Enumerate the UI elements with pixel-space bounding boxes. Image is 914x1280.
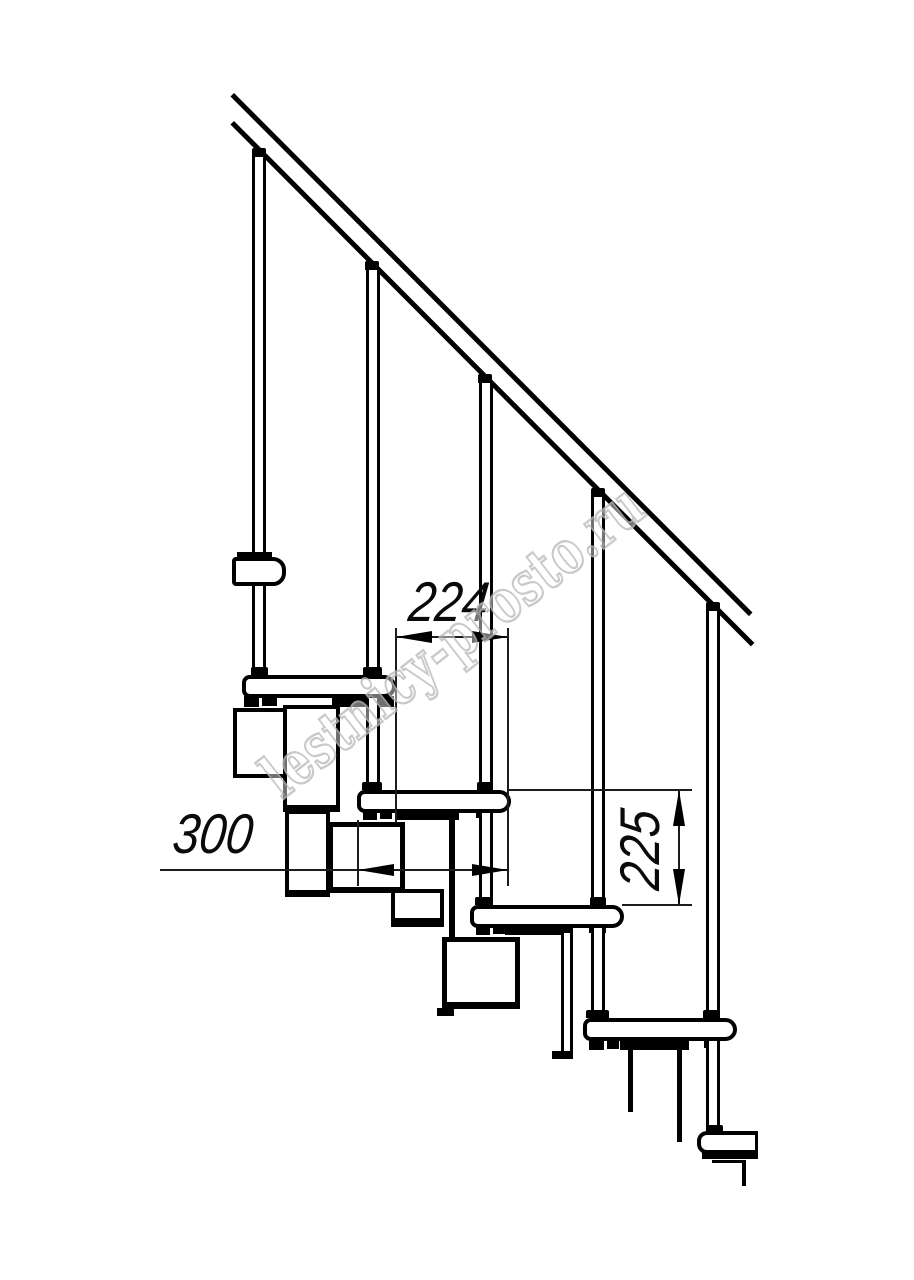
tread-5 [583, 1018, 737, 1041]
module-leg-t4-foot [552, 1051, 573, 1059]
baluster-5-tread-cap [707, 1125, 723, 1133]
module-leg-t5-left [628, 1050, 633, 1112]
baluster-4 [591, 496, 605, 1018]
baluster-5-rail-cap [706, 602, 720, 611]
baluster-5 [706, 610, 720, 1133]
baluster-1-rail-cap [252, 148, 266, 157]
baluster-2-collar [363, 667, 382, 675]
baluster-5-collar [703, 1010, 720, 1018]
dim-225-arrow-up [673, 790, 685, 826]
baluster-2-tread-cap [362, 782, 382, 790]
dim-300-arrow-left [358, 864, 394, 876]
tread6-step-line-h [712, 1160, 746, 1163]
baluster-4-rail-cap [591, 488, 605, 497]
dim-224-label: 224 [406, 574, 492, 630]
tread5-foot-tab [607, 1041, 619, 1049]
dim-224-ext-right [507, 628, 509, 886]
dim-225-label: 225 [612, 806, 668, 892]
baluster-3-tread-cap [475, 897, 493, 905]
baluster-1 [252, 156, 266, 675]
dim-300-label: 300 [170, 806, 256, 862]
module-leg-t4 [561, 933, 573, 1055]
tread-6-partial [697, 1131, 758, 1154]
dim-224-ext-left [395, 628, 397, 823]
module-m3-foot [437, 1008, 454, 1016]
dim-225-label-wrap: 225 [612, 789, 668, 909]
dim-225-arrow-down [673, 869, 685, 905]
module-box-a [283, 705, 340, 812]
module-box-m3 [442, 937, 520, 1009]
baluster-3 [479, 382, 493, 905]
watermark-overlay: lestnicy-prosto.ru [0, 0, 914, 1280]
module-leg-t3 [449, 814, 455, 938]
baluster-4-collar [590, 897, 606, 905]
tread5-mount-bar [620, 1041, 689, 1050]
module-box-300 [328, 822, 405, 893]
module-box-upper-left [233, 708, 287, 778]
baluster-2 [366, 269, 380, 790]
module-box-b2 [391, 889, 444, 927]
baluster-4-tread-cap [586, 1010, 609, 1018]
baluster-1-tread-cap [251, 667, 268, 675]
tread-4 [470, 905, 624, 928]
baluster-3-rail-cap [478, 374, 492, 383]
dim-300-line [160, 869, 508, 871]
tread-2 [242, 675, 396, 698]
tread-3 [357, 790, 511, 813]
baluster-2-rail-cap [365, 261, 379, 270]
dim-300-arrow-right [472, 864, 508, 876]
tread-1-clamp [232, 557, 286, 586]
dim-300-ext-left [357, 820, 359, 886]
baluster-3-collar [477, 782, 493, 790]
module-leg-t5-right [677, 1050, 682, 1142]
staircase-technical-drawing: 224 300 225 lestnicy-prosto.ru [0, 0, 914, 1280]
tread5-foot-tab [589, 1041, 604, 1050]
module-box-a2 [285, 810, 330, 897]
tread-1-top-tab [237, 552, 272, 558]
tread6-step-line-v [742, 1160, 746, 1186]
